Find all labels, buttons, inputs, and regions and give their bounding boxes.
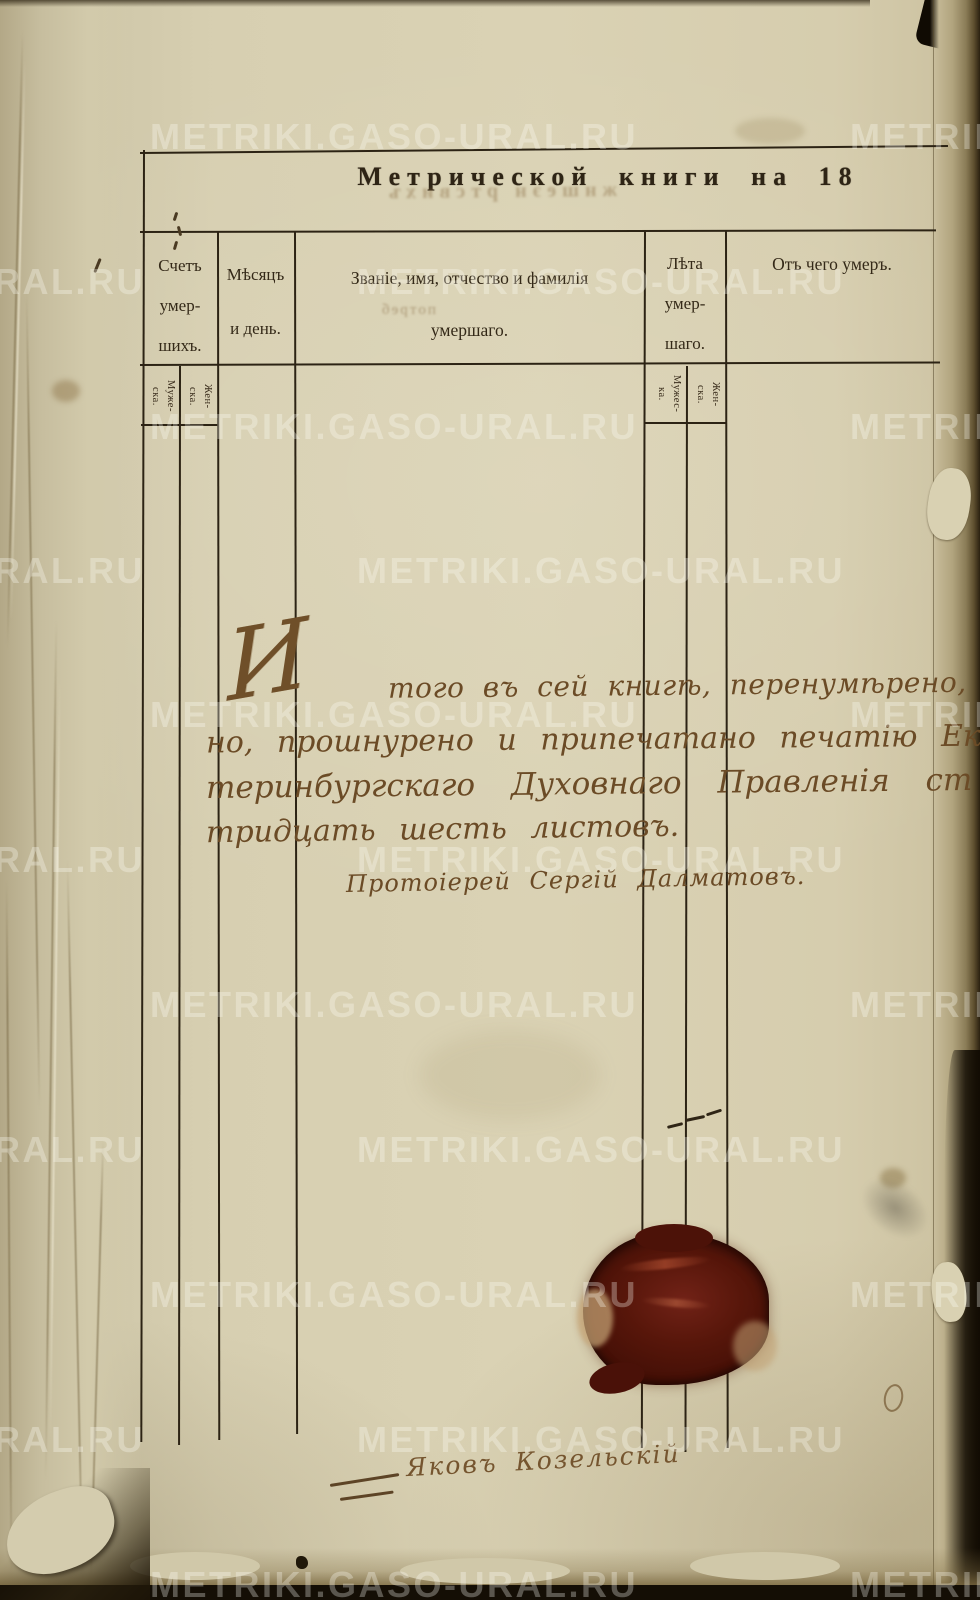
wax-seal-thin-patch [733,1321,777,1371]
column-header-cause: Отъ чего умеръ. [727,254,937,275]
scanned-register-page: Метрической книги на 18 жншеэн ртсвихъ п… [0,0,980,1600]
column-header-count: Счетъ умер- шихъ. [144,246,216,366]
ink-tick-mark [685,1115,705,1122]
priest-signature: Протоіерей Сергій Далматовъ. [346,862,806,898]
watermark-text: METRIKI.GASO-URAL.RU [150,1274,638,1316]
subheader-female-count: Жен-ска. [181,369,215,423]
torn-paper-blob [690,1552,840,1580]
torn-paper-blob [400,1558,570,1584]
watermark-text: METRIKI.GASO-URAL.RU [150,406,638,448]
ink-tick-mark [667,1122,683,1128]
subheader-female-age: Жен-ска. [688,367,723,421]
certification-line-1: того въ сей книгѣ, перенумѣрено, скрѣпле [388,664,980,705]
certification-drop-cap: И [225,604,311,715]
wax-seal-highlight [619,1254,712,1274]
table-column-line [178,366,181,1445]
wax-seal-thin-patch [577,1289,613,1347]
watermark-text: METRIKI.GASO-URAL.RU [150,984,638,1026]
certification-line-3: теринбургскаго Духовнаго Правленія ст [206,762,973,806]
watermark-text: METRIKI.GASO-URAL.RU [357,550,845,592]
page-edge-top [0,0,870,7]
column-header-name: Званіе, имя, отчество и фамилія умершаго… [296,252,643,356]
certification-line-2: но, прошнурено и припечатано печатію Ека [206,719,980,761]
wax-seal-drip [635,1224,713,1252]
subheader-male-age: Мужес-ка. [647,367,684,421]
table-rule-under-headers [140,361,940,366]
pen-dash-mark [330,1473,400,1487]
column-header-month-day: Мѣсяцъ и день. [218,248,293,356]
paper-stain [52,380,80,402]
page-fold-line [933,0,934,1600]
watermark-text: METRIKI.GASO-URAL.RU [357,1129,845,1171]
paper-stain [420,1030,600,1120]
ink-speck [296,1556,308,1569]
bleed-through-text: жншеэн ртсвихъ [222,179,617,206]
subheader-male-count: Муже-ска. [144,369,178,423]
wax-seal [583,1233,769,1385]
column-header-age: Лѣта умер- шаго. [646,244,724,364]
table-rule-under-title [140,229,936,233]
margin-squiggle [173,212,179,221]
paper-stain [735,118,805,144]
ink-tick-mark [706,1109,722,1117]
pen-dash-mark [340,1490,394,1500]
ring-mark [881,1382,905,1413]
certification-line-4: тридцать шесть листовъ. [206,809,680,851]
page-edge-left [0,0,142,1600]
page-shadow-right [944,1050,980,1600]
table-border-top [140,145,948,154]
wax-seal-lobe [586,1358,647,1399]
wax-seal-highlight [641,1296,711,1310]
bottom-signature: Яковъ Козельскій [405,1439,681,1482]
